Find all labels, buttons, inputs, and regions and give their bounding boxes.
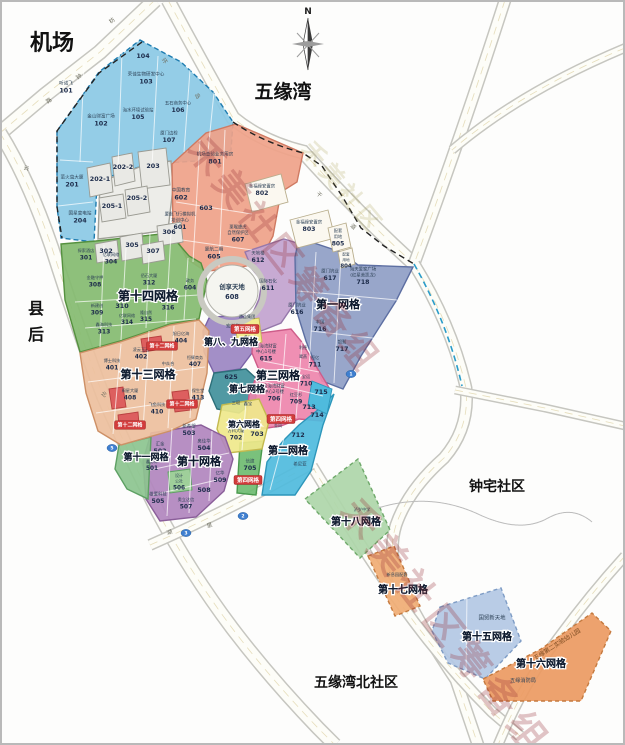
block-number: 803	[303, 226, 316, 233]
block-name: 中心1号楼	[256, 348, 277, 355]
map-canvas: 104荣佳生物研发中心103金山财富广场102海水环境试验站105五石商务中心1…	[0, 0, 625, 745]
block-name: 新建创	[91, 302, 104, 309]
block-name: 鹭燕	[299, 353, 307, 359]
grid-label-text: 第十网格	[177, 454, 222, 468]
block-713: 713	[302, 403, 315, 411]
circle-plaza-number: 608	[225, 293, 239, 301]
block-305: 305	[125, 241, 138, 249]
grid-label-text: 第三网格	[256, 368, 301, 382]
block-利德: 利德	[299, 344, 307, 350]
block-number: 313	[98, 329, 111, 336]
grid-label-text: 第十六网格	[516, 657, 567, 670]
block-202-2: 202-2	[113, 163, 133, 171]
block-301: 探索酒店301	[78, 247, 95, 261]
block-504: 奥佳华504	[197, 437, 211, 452]
grid-label-red: 第十二网格	[167, 400, 198, 409]
block-312: 佰石大厦312	[141, 272, 158, 286]
block-715: 715	[314, 388, 327, 396]
block-number: 501	[146, 466, 158, 472]
block-name: 奥佳华	[197, 437, 211, 444]
grid-label-text: 第十四网格	[118, 288, 179, 303]
block-name: 新希望	[182, 422, 196, 429]
road-marker: 3	[181, 529, 191, 536]
block-number: 805	[332, 240, 345, 247]
block-number: 602	[174, 193, 187, 201]
block-name: 金融守押	[87, 274, 104, 281]
block-number: 605	[207, 252, 220, 260]
block-number: 718	[357, 279, 370, 286]
block-number: 506	[173, 486, 185, 492]
block-name: 中心2号楼	[264, 388, 285, 395]
block-name: 奥立达信	[178, 496, 195, 503]
block-number: 709	[290, 399, 303, 406]
block-number: 102	[94, 119, 107, 127]
block-name: 红豆杉	[290, 391, 303, 398]
block-name: 亿联网络	[119, 312, 135, 318]
north-label: N	[304, 7, 312, 17]
grid-label-red: 第十二网格	[115, 421, 146, 430]
grid-label-text: 第四网格	[270, 415, 293, 423]
grid-label-text: 第十二网格	[149, 343, 175, 350]
block-number: 106	[172, 107, 185, 114]
grid-label-red: 第五网格	[231, 325, 259, 334]
block-712: 712	[291, 431, 304, 439]
block-508: 508	[197, 486, 211, 494]
block-number: 611	[262, 285, 275, 292]
block-name: 金福缘安置房	[296, 218, 323, 225]
grid-label-text: 第四网格	[237, 476, 260, 484]
block-number: 104	[136, 52, 150, 60]
block-name: 厦航飞行模拟机	[165, 210, 196, 217]
block-鹭燕: 鹭燕	[299, 353, 307, 359]
block-101: 听诺飞101	[59, 80, 73, 95]
block-number: 703	[250, 430, 263, 438]
block-name: 配套	[342, 252, 350, 257]
block-name: 亿联网络	[103, 251, 121, 258]
grid-label-text: 第二网格	[268, 444, 309, 457]
block-408: 闽星大厦408	[122, 387, 139, 401]
block-number: 713	[302, 403, 315, 411]
block-name: 国际石化	[259, 277, 277, 284]
block-number: 705	[244, 465, 257, 472]
circle-plaza	[206, 265, 258, 317]
block-通益集团: 通益集团	[239, 313, 256, 320]
block-name: 用地	[342, 257, 350, 262]
block-number: 308	[89, 282, 102, 289]
block-702: 方科大厦702	[228, 427, 245, 441]
block-name: 博士科技	[104, 357, 122, 364]
block-name: 用地	[334, 233, 343, 240]
grid-label-text: 第八、九网格	[204, 336, 259, 348]
block-number: 314	[121, 320, 133, 326]
block-name: 信誼	[246, 457, 255, 464]
block-name: 金海湾财富	[263, 382, 284, 389]
block-503: 新希望503	[182, 422, 196, 437]
road-marker: 2	[238, 512, 248, 519]
grid-label-text: 第十一网格	[123, 451, 169, 463]
block-number: 203	[146, 162, 159, 170]
block-number: 204	[73, 216, 87, 224]
block-name: 公社	[175, 478, 183, 484]
block-name: 汇金	[156, 440, 165, 447]
block-number: 201	[65, 180, 78, 188]
block-number: 706	[268, 396, 281, 403]
block-number: 202-2	[113, 163, 133, 171]
block-number: 305	[125, 241, 138, 249]
block-203: 203	[146, 162, 159, 170]
block-name: 中众合	[162, 360, 175, 367]
block-name: (红星美凯龙)	[350, 271, 376, 278]
area-label-airport: 机场	[30, 31, 74, 56]
grid-map-page: 104荣佳生物研发中心103金山财富广场102海水环境试验站105五石商务中心1…	[0, 0, 625, 745]
block-703: 703	[250, 430, 263, 438]
block-number: 504	[198, 445, 212, 452]
block-709: 红豆杉709	[290, 391, 303, 405]
block-name: 国贸新天地	[479, 613, 507, 621]
block-number: 625	[224, 373, 237, 381]
block-name: 亿华	[216, 469, 225, 476]
block-name: 探索酒店	[78, 247, 95, 254]
block-name: 希尼亚	[293, 460, 307, 467]
block-number: 307	[146, 247, 159, 255]
block-number: 604	[184, 285, 197, 292]
grid-label-text: 第十二网格	[117, 422, 143, 429]
block-number: 407	[189, 362, 201, 368]
grid-label-text: 第六网格	[228, 419, 261, 429]
block-name: 海水环境试验站	[123, 106, 154, 113]
block-number: 607	[232, 237, 245, 244]
block-603: 603	[199, 204, 212, 212]
block-name: 五石商务中心	[165, 99, 192, 106]
block-name: 恒辉商务	[187, 354, 203, 360]
block-name: 宝运	[302, 373, 311, 380]
circle-plaza-name: 创享天地	[218, 282, 245, 291]
road-marker-number: 5	[110, 446, 113, 452]
block-625: 625	[224, 373, 237, 381]
block-413: 保生堂413	[192, 387, 205, 401]
block-number: 202-1	[90, 175, 110, 183]
block-number: 205-1	[102, 202, 122, 210]
block-number: 107	[163, 137, 176, 144]
block-number: 304	[105, 259, 118, 266]
block-name: 佰石大厦	[141, 272, 158, 279]
block-205-1: 205-1	[102, 202, 122, 210]
block-国贸新天地: 国贸新天地	[479, 613, 507, 621]
grid-label-red: 第四网格	[234, 476, 262, 485]
block-name: 保生堂	[192, 387, 205, 394]
block-number: 410	[151, 409, 164, 416]
block-number: 316	[162, 305, 175, 312]
block-number: 101	[59, 86, 72, 94]
block-鑫宝: 鑫宝	[244, 400, 252, 407]
block-number: 507	[180, 504, 193, 511]
block-name: 雄厦科技	[149, 490, 167, 497]
block-name: 鑫宝	[244, 400, 252, 407]
block-number: 505	[152, 498, 165, 505]
block-number: 710	[300, 381, 313, 388]
grid-label-text: 第十二网格	[169, 401, 195, 408]
block-name: 海天爱家广场	[350, 265, 377, 272]
block-name: 隆自然	[140, 309, 152, 315]
block-name: 设计	[175, 472, 183, 478]
area-label-wuyuanwan-north: 五缘湾北社区	[314, 674, 398, 691]
block-number: 205-2	[127, 194, 147, 202]
block-number: 315	[140, 317, 152, 323]
block-name: 政务	[186, 277, 195, 284]
block-number: 309	[91, 310, 104, 317]
block-number: 401	[106, 365, 119, 372]
block-number: 402	[135, 354, 148, 361]
block-number: 712	[291, 431, 304, 439]
block-310: 310	[115, 302, 129, 310]
block-number: 310	[115, 302, 129, 310]
block-name: 鑫海科技	[96, 321, 114, 328]
block-number: 601	[174, 224, 187, 231]
block-number: 105	[132, 114, 145, 121]
road-marker: 5	[107, 444, 117, 451]
block-number: 702	[230, 435, 243, 442]
grid-label-text: 第七网格	[229, 383, 266, 395]
grid-label-red: 第四网格	[267, 415, 295, 424]
block-number: 312	[143, 280, 156, 287]
block-number: 509	[214, 477, 227, 484]
block-714: 714	[310, 411, 324, 419]
block-name: 旭日亿海	[173, 330, 191, 337]
block-name: 培训中心	[171, 216, 189, 223]
block-number: 615	[260, 356, 273, 363]
area-label-zhongzhai: 钟宅社区	[469, 478, 525, 495]
block-number: 503	[183, 430, 196, 437]
block-name: 通益集团	[239, 313, 256, 320]
grid-label-text: 第五网格	[234, 325, 257, 333]
block-name: 金海湾财富	[255, 342, 276, 349]
block-205-2: 205-2	[127, 194, 147, 202]
grid-label-text: 第十三网格	[121, 367, 177, 381]
block-104: 104	[136, 52, 150, 60]
road-marker-number: 3	[184, 531, 187, 537]
block-number: 715	[314, 388, 327, 396]
block-number: 714	[310, 411, 324, 419]
block-309: 新建创309	[91, 302, 104, 316]
block-308: 金融守押308	[87, 274, 104, 288]
grid-label-red: 第十二网格	[147, 342, 178, 351]
block-name: 利德	[299, 344, 307, 350]
area-label-xianhou-1: 县	[28, 299, 44, 318]
block-number: 103	[139, 77, 152, 85]
block-number: 711	[309, 362, 322, 369]
block-507: 奥立达信507	[178, 496, 195, 510]
block-307: 307	[146, 247, 159, 255]
block-number: 301	[80, 255, 93, 262]
block-number: 508	[197, 486, 211, 494]
block-202-1: 202-1	[90, 175, 110, 183]
block-name: 厦门边检	[160, 129, 178, 136]
area-label-wuyuan-bay: 五缘湾	[254, 80, 311, 103]
block-name: 恒亿	[311, 354, 319, 361]
block-name: 闽星大厦	[122, 387, 139, 394]
block-number: 408	[124, 395, 137, 402]
block-number: 603	[199, 204, 212, 212]
road-marker-number: 2	[241, 514, 244, 520]
block-name: 飞鱼科技	[149, 401, 167, 408]
area-label-xianhou-2: 后	[28, 325, 44, 344]
block-希尼亚: 希尼亚	[293, 460, 307, 467]
